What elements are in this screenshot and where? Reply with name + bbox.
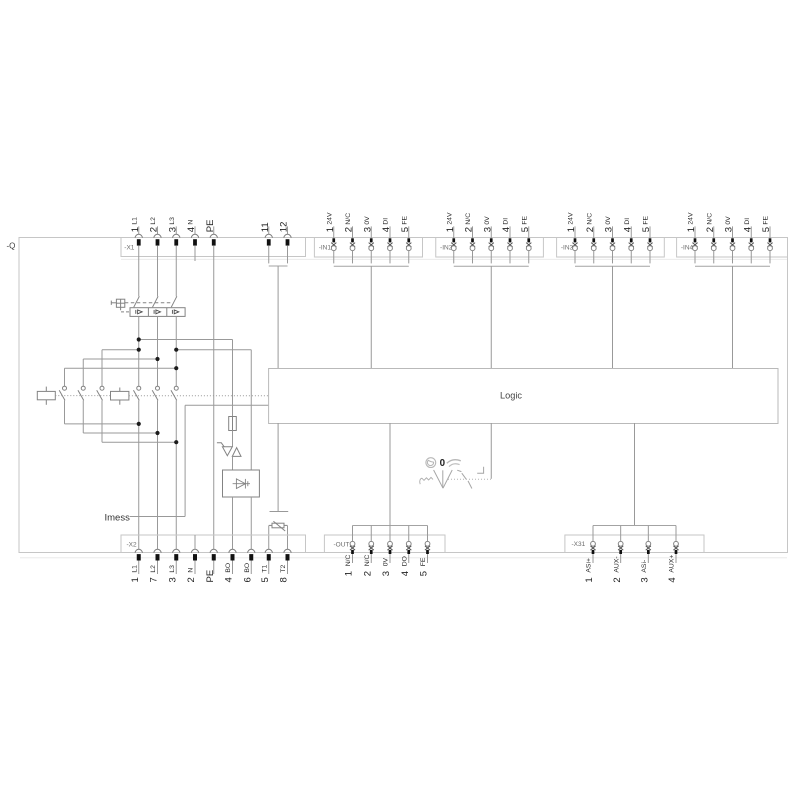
svg-text:5: 5 [419, 571, 430, 576]
svg-text:5: 5 [260, 577, 271, 582]
svg-text:5: 5 [761, 227, 772, 232]
svg-text:DI: DI [624, 218, 631, 225]
svg-text:-X1: -X1 [124, 245, 135, 252]
svg-text:PE: PE [205, 220, 216, 233]
svg-text:FE: FE [521, 215, 528, 224]
svg-text:8: 8 [279, 577, 290, 582]
svg-text:T2: T2 [280, 564, 287, 572]
svg-text:DI: DI [503, 218, 510, 225]
svg-text:FE: FE [763, 215, 770, 224]
svg-text:1: 1 [325, 227, 336, 232]
svg-text:4: 4 [186, 227, 197, 232]
svg-text:-IN2: -IN2 [440, 244, 453, 251]
svg-text:2: 2 [149, 227, 160, 232]
svg-text:N/C: N/C [586, 213, 593, 225]
svg-text:N/C: N/C [345, 213, 352, 225]
svg-text:3: 3 [362, 227, 373, 232]
svg-text:0V: 0V [605, 216, 612, 225]
svg-text:7: 7 [149, 577, 160, 582]
svg-text:24V: 24V [688, 212, 695, 225]
svg-text:-Q: -Q [7, 241, 16, 250]
svg-text:-IN4: -IN4 [681, 244, 694, 251]
svg-text:2: 2 [705, 227, 716, 232]
svg-text:N: N [188, 568, 195, 573]
svg-text:L3: L3 [169, 565, 176, 573]
svg-text:FE: FE [420, 557, 427, 566]
svg-text:3: 3 [167, 227, 178, 232]
svg-text:1: 1 [686, 227, 697, 232]
svg-text:6: 6 [242, 577, 253, 582]
svg-text:L1: L1 [131, 217, 138, 225]
svg-text:L1: L1 [131, 565, 138, 573]
svg-text:-X31: -X31 [572, 541, 586, 548]
svg-text:3: 3 [482, 227, 493, 232]
svg-text:4: 4 [224, 577, 235, 582]
svg-text:5: 5 [400, 227, 411, 232]
svg-text:0V: 0V [364, 216, 371, 225]
svg-text:BO: BO [225, 563, 232, 573]
svg-text:2: 2 [362, 571, 373, 576]
svg-text:4: 4 [667, 577, 678, 582]
svg-text:L3: L3 [169, 217, 176, 225]
svg-text:4: 4 [622, 227, 633, 232]
svg-text:0V: 0V [383, 558, 390, 567]
svg-text:Logic: Logic [500, 391, 522, 401]
svg-text:DO: DO [401, 556, 408, 566]
svg-text:5: 5 [520, 227, 531, 232]
svg-text:0V: 0V [484, 216, 491, 225]
svg-text:FE: FE [401, 215, 408, 224]
svg-text:ASi-: ASi- [641, 560, 648, 573]
svg-text:L2: L2 [150, 565, 157, 573]
svg-text:1: 1 [584, 577, 595, 582]
svg-text:N/C: N/C [465, 213, 472, 225]
svg-text:BO: BO [244, 563, 251, 573]
svg-text:ASi+: ASi+ [586, 558, 593, 573]
svg-text:4: 4 [381, 227, 392, 232]
svg-text:24V: 24V [326, 212, 333, 225]
svg-text:FE: FE [643, 215, 650, 224]
svg-text:Imess: Imess [105, 512, 131, 523]
svg-text:AUX+: AUX+ [669, 555, 676, 573]
svg-text:0: 0 [440, 458, 446, 469]
svg-text:AUX-: AUX- [613, 556, 620, 572]
svg-text:2: 2 [464, 227, 475, 232]
svg-text:24V: 24V [446, 212, 453, 225]
svg-text:DI: DI [383, 218, 390, 225]
svg-text:T1: T1 [261, 564, 268, 572]
svg-text:-X2: -X2 [127, 542, 138, 549]
svg-text:-IN3: -IN3 [561, 244, 574, 251]
svg-text:PE: PE [205, 570, 216, 583]
svg-text:N/C: N/C [706, 213, 713, 225]
svg-text:3: 3 [381, 571, 392, 576]
svg-text:1: 1 [445, 227, 456, 232]
svg-text:5: 5 [641, 227, 652, 232]
svg-text:12: 12 [279, 222, 290, 233]
svg-text:L2: L2 [150, 217, 157, 225]
svg-text:3: 3 [724, 227, 735, 232]
svg-text:3: 3 [639, 577, 650, 582]
svg-text:1: 1 [130, 227, 141, 232]
svg-text:4: 4 [742, 227, 753, 232]
svg-text:1: 1 [344, 571, 355, 576]
svg-text:24V: 24V [568, 212, 575, 225]
svg-text:DI: DI [744, 218, 751, 225]
svg-text:4: 4 [501, 227, 512, 232]
svg-text:2: 2 [344, 227, 355, 232]
svg-text:1: 1 [566, 227, 577, 232]
svg-text:2: 2 [585, 227, 596, 232]
svg-text:N/C: N/C [345, 555, 352, 567]
svg-text:N: N [188, 220, 195, 225]
svg-text:2: 2 [612, 577, 623, 582]
svg-text:3: 3 [167, 577, 178, 582]
svg-text:1: 1 [130, 577, 141, 582]
svg-text:4: 4 [400, 571, 411, 576]
svg-text:0V: 0V [725, 216, 732, 225]
svg-text:N/C: N/C [364, 555, 371, 567]
svg-text:3: 3 [604, 227, 615, 232]
svg-text:2: 2 [186, 577, 197, 582]
svg-text:-IN1: -IN1 [319, 244, 332, 251]
svg-text:11: 11 [260, 222, 271, 232]
